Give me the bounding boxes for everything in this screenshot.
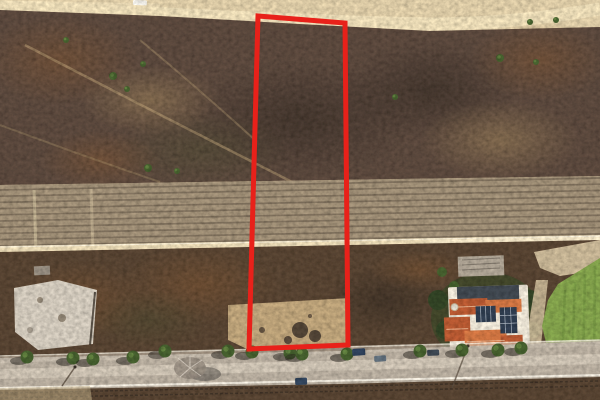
street-tree	[414, 345, 427, 358]
bush	[140, 61, 146, 67]
palm-tree	[437, 267, 447, 277]
brush-rust-patch	[40, 130, 160, 190]
street-tree-highlight	[457, 345, 462, 350]
bush	[124, 86, 130, 92]
debris-pile	[292, 322, 308, 338]
vehicle	[133, 0, 147, 5]
street-tree-highlight	[68, 353, 73, 358]
street-tree	[341, 348, 354, 361]
street-tree	[222, 345, 235, 358]
street-tree-highlight	[415, 346, 420, 351]
street-tree	[492, 344, 505, 357]
small-shed	[34, 266, 50, 276]
bush-highlight	[534, 60, 537, 63]
street-tree-highlight	[22, 352, 27, 357]
bush-highlight	[393, 95, 396, 98]
aerial-photo-canvas	[0, 0, 600, 400]
debris-pile	[309, 330, 321, 342]
street-tree-highlight	[160, 346, 165, 351]
garden-tree	[428, 290, 448, 310]
bush	[553, 17, 559, 23]
row-break-path	[91, 189, 93, 250]
street-tree	[159, 345, 172, 358]
street-tree-highlight	[297, 349, 302, 354]
street-tree-highlight	[128, 352, 133, 357]
debris-pile	[259, 327, 265, 333]
street-tree	[87, 353, 100, 366]
bush-highlight	[64, 38, 67, 41]
bush-highlight	[528, 20, 531, 23]
bush	[392, 94, 398, 100]
brush-light-patch	[420, 100, 580, 180]
street-tree-highlight	[342, 349, 347, 354]
bush-highlight	[145, 165, 149, 169]
solar-panels	[500, 307, 518, 334]
street-tree	[127, 351, 140, 364]
vehicle	[374, 355, 386, 362]
bush-highlight	[125, 87, 128, 90]
vehicle	[427, 349, 439, 356]
vehicle	[352, 348, 365, 356]
debris-pile	[308, 314, 312, 318]
aerial-photo	[0, 0, 600, 400]
bush-highlight	[110, 73, 114, 77]
street-tree	[515, 342, 528, 355]
brush-olive-patch	[90, 290, 210, 350]
bush	[533, 59, 539, 65]
bush-highlight	[175, 169, 178, 172]
bush	[527, 19, 533, 25]
turret-dome	[451, 304, 458, 311]
brush-light-patch	[80, 65, 220, 135]
utility-pole	[74, 366, 77, 369]
vehicle	[295, 378, 307, 385]
street-tree-highlight	[88, 354, 93, 359]
debris-pile	[284, 336, 292, 344]
cleared-pad	[228, 298, 350, 349]
row-break-path	[34, 190, 36, 251]
dirt-patch	[0, 386, 92, 400]
street-tree-highlight	[516, 343, 521, 348]
bush	[174, 168, 180, 174]
terrain	[0, 0, 600, 400]
rubble	[58, 314, 66, 322]
bush-highlight	[497, 55, 501, 59]
rock-clearing-pad	[14, 280, 97, 350]
street-tree	[456, 344, 469, 357]
bush-highlight	[554, 18, 557, 21]
bush	[63, 37, 69, 43]
rubble	[37, 297, 43, 303]
street-tree-highlight	[493, 345, 498, 350]
rubble	[27, 327, 33, 333]
street-tree	[21, 351, 34, 364]
street-tree-highlight	[223, 346, 228, 351]
bush-highlight	[141, 62, 144, 65]
